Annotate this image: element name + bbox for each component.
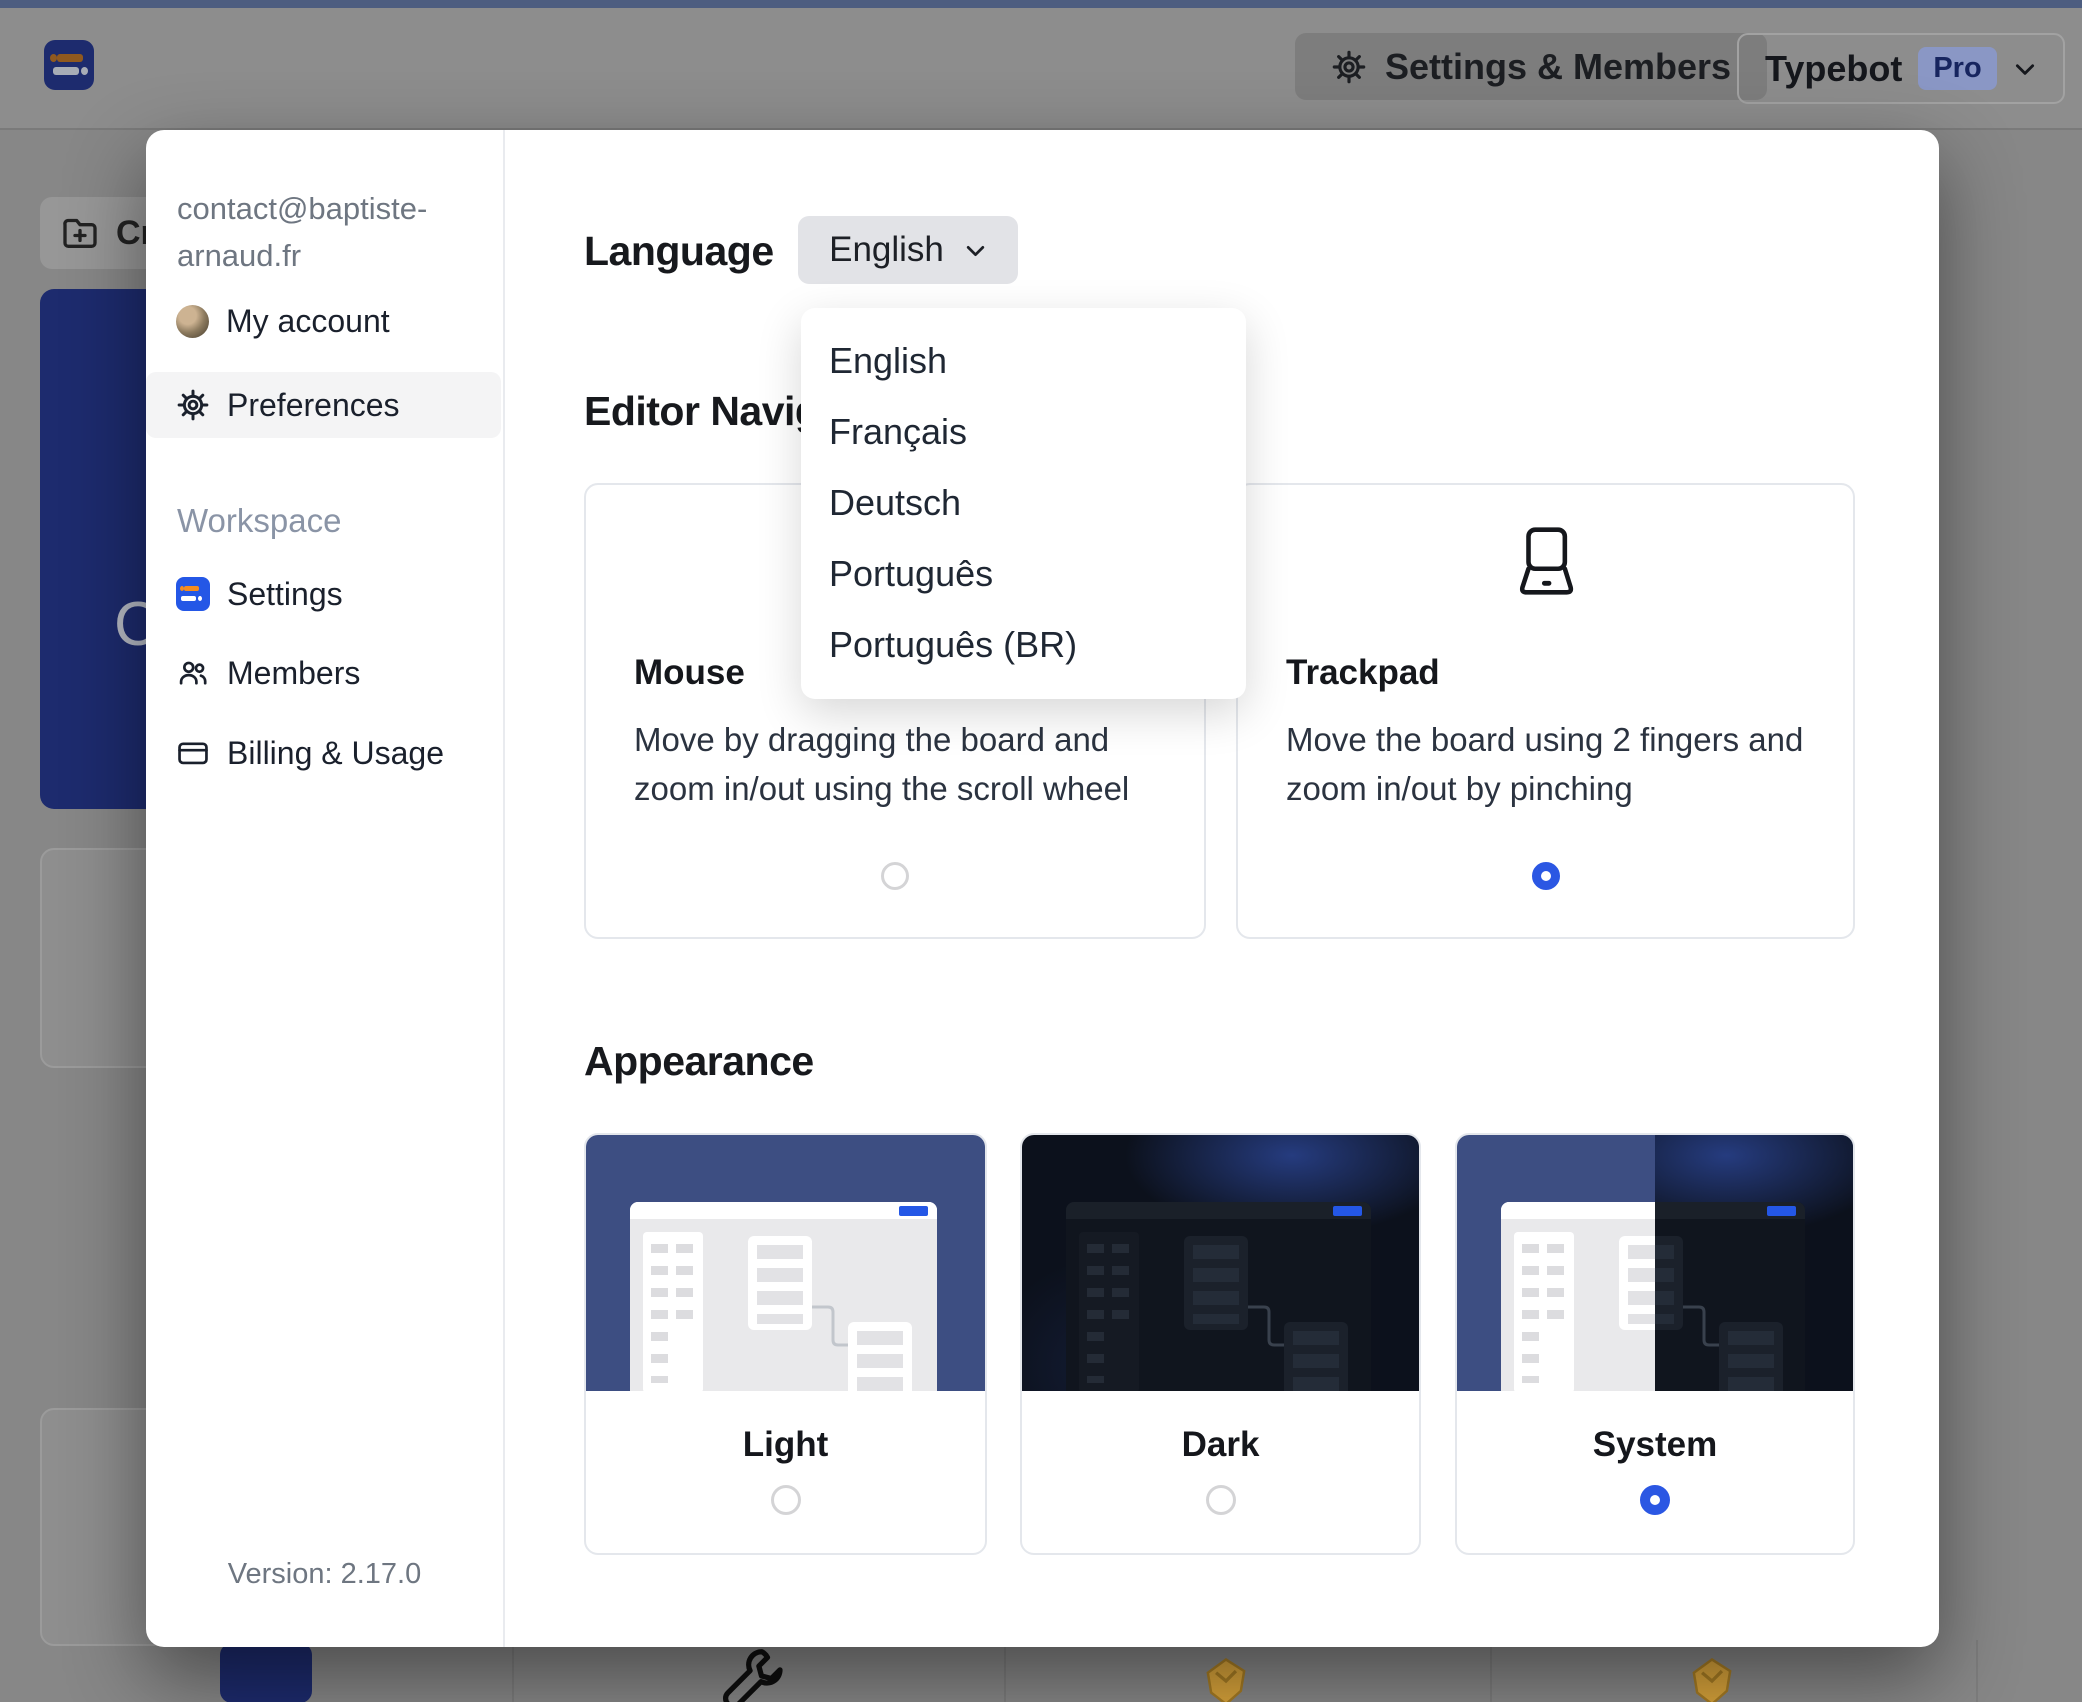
language-option-francais[interactable]: Français — [801, 396, 1246, 467]
nav-option-trackpad-card[interactable]: Trackpad Move the board using 2 fingers … — [1236, 483, 1855, 939]
mouse-card-description: Move by dragging the board and zoom in/o… — [634, 715, 1174, 813]
language-dropdown-menu: English Français Deutsch Português Portu… — [801, 308, 1246, 699]
language-selected-value: English — [829, 230, 944, 270]
laptop-icon — [1511, 523, 1581, 601]
workspace-settings-label: Settings — [227, 576, 343, 613]
credit-card-icon — [176, 736, 210, 770]
theme-light-radio[interactable] — [771, 1485, 801, 1515]
window-top-strip — [0, 0, 2082, 8]
sidebar-item-settings[interactable]: Settings — [146, 563, 501, 625]
members-icon — [176, 656, 210, 690]
gear-icon — [1331, 49, 1367, 85]
sidebar-item-my-account[interactable]: My account — [146, 290, 501, 352]
theme-option-system-card[interactable]: System — [1455, 1133, 1855, 1555]
theme-option-light-card[interactable]: Light — [584, 1133, 987, 1555]
plan-badge: Pro — [1918, 47, 1996, 90]
settings-members-label: Settings & Members — [1385, 46, 1731, 88]
wrench-icon — [714, 1644, 788, 1702]
dimmed-card-edge — [1976, 1640, 1978, 1702]
workspace-section-label: Workspace — [177, 502, 341, 540]
my-account-label: My account — [226, 303, 390, 340]
dimmed-card-edge — [1490, 1640, 1492, 1702]
language-option-deutsch[interactable]: Deutsch — [801, 467, 1246, 538]
sidebar-item-members[interactable]: Members — [146, 642, 501, 704]
workspace-settings-icon — [176, 577, 210, 611]
mouse-radio[interactable] — [881, 862, 909, 890]
app-topbar: Settings & Members Typebot Pro — [0, 8, 2082, 130]
billing-label: Billing & Usage — [227, 735, 444, 772]
theme-dark-label: Dark — [1022, 1425, 1419, 1465]
language-section-heading: Language — [584, 228, 774, 275]
language-option-portugues[interactable]: Português — [801, 538, 1246, 609]
trackpad-card-description: Move the board using 2 fingers and zoom … — [1286, 715, 1826, 813]
sidebar-item-billing[interactable]: Billing & Usage — [146, 722, 501, 784]
handshake-icon — [1193, 1648, 1259, 1702]
user-email: contact@baptiste- arnaud.fr — [177, 185, 467, 279]
members-label: Members — [227, 655, 360, 692]
system-theme-thumbnail — [1457, 1135, 1853, 1391]
workspace-name: Typebot — [1765, 48, 1902, 90]
preferences-label: Preferences — [227, 387, 400, 424]
typebot-logo-icon[interactable] — [44, 40, 94, 90]
appearance-section-heading: Appearance — [584, 1038, 814, 1085]
dimmed-blue-block — [220, 1643, 312, 1702]
mouse-card-title: Mouse — [634, 653, 745, 693]
light-theme-thumbnail — [586, 1135, 985, 1391]
settings-members-button[interactable]: Settings & Members — [1295, 33, 1767, 100]
theme-light-label: Light — [586, 1425, 985, 1465]
version-text: Version: 2.17.0 — [146, 1558, 503, 1591]
language-option-english[interactable]: English — [801, 325, 1246, 396]
chevron-down-icon — [2013, 57, 2037, 81]
screen: Settings & Members Typebot Pro Cr C — [0, 0, 2082, 1702]
sidebar-item-preferences[interactable]: Preferences — [146, 372, 501, 438]
theme-dark-radio[interactable] — [1206, 1485, 1236, 1515]
language-select-button[interactable]: English — [798, 216, 1018, 284]
theme-option-dark-card[interactable]: Dark — [1020, 1133, 1421, 1555]
dark-theme-thumbnail — [1022, 1135, 1419, 1391]
trackpad-card-title: Trackpad — [1286, 653, 1440, 693]
avatar — [176, 305, 209, 338]
dimmed-card-edge — [512, 1640, 514, 1702]
workspace-switcher-button[interactable]: Typebot Pro — [1737, 33, 2065, 104]
theme-system-label: System — [1457, 1425, 1853, 1465]
settings-sidebar: contact@baptiste- arnaud.fr My account P… — [146, 130, 505, 1647]
settings-modal: contact@baptiste- arnaud.fr My account P… — [146, 130, 1939, 1647]
dimmed-card-edge — [1004, 1640, 1006, 1702]
handshake-icon — [1679, 1648, 1745, 1702]
gear-icon — [176, 388, 210, 422]
chevron-down-icon — [964, 239, 987, 262]
language-option-portugues-br[interactable]: Português (BR) — [801, 609, 1246, 680]
trackpad-radio[interactable] — [1532, 862, 1560, 890]
folder-plus-icon — [60, 213, 100, 253]
theme-system-radio[interactable] — [1640, 1485, 1670, 1515]
